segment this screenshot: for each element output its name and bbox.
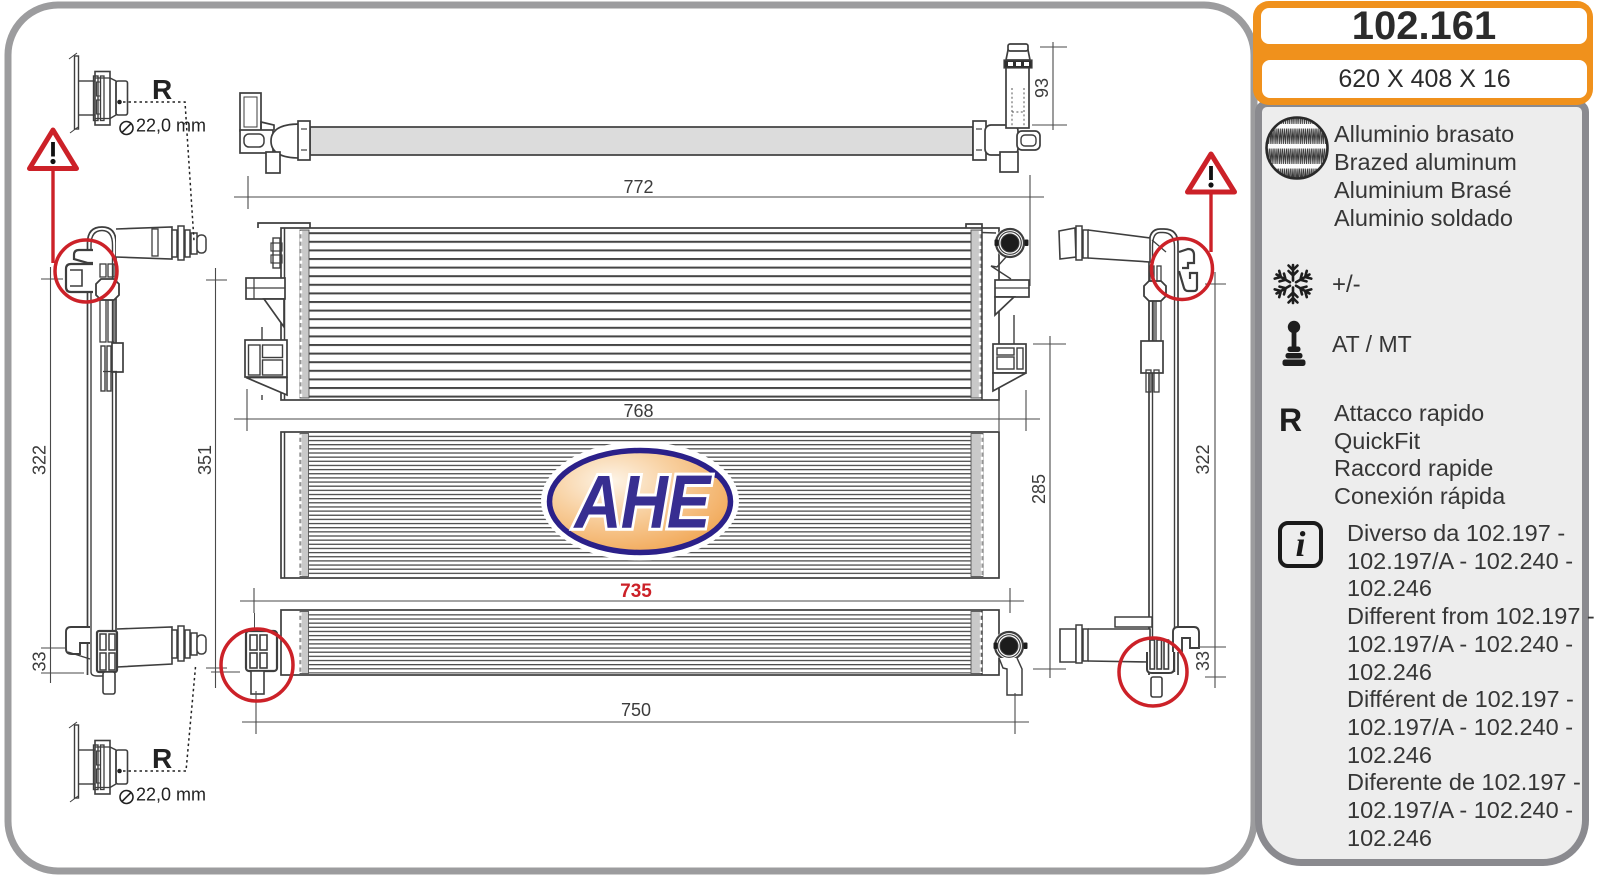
svg-text:772: 772	[623, 177, 653, 197]
svg-text:R: R	[152, 743, 172, 774]
svg-text:322: 322	[30, 445, 50, 475]
svg-text:33: 33	[1193, 651, 1213, 671]
svg-text:285: 285	[1029, 474, 1049, 504]
svg-text:AHE: AHE	[573, 460, 712, 544]
svg-text:22,0 mm: 22,0 mm	[136, 116, 206, 136]
svg-text:768: 768	[623, 401, 653, 421]
svg-text:750: 750	[621, 700, 651, 720]
svg-text:22,0 mm: 22,0 mm	[136, 785, 206, 805]
svg-text:R: R	[152, 74, 172, 105]
svg-text:351: 351	[195, 445, 215, 475]
svg-text:735: 735	[620, 581, 652, 602]
svg-text:93: 93	[1032, 78, 1052, 98]
svg-text:33: 33	[30, 651, 50, 671]
svg-text:322: 322	[1193, 444, 1213, 474]
